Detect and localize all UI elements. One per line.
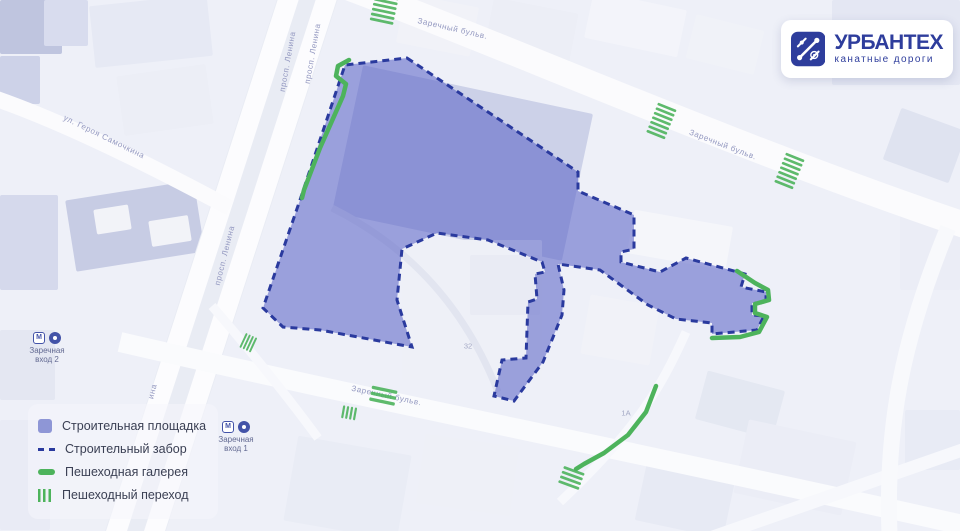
legend-item-site: Строительная площадка (38, 419, 206, 433)
gallery-swatch-icon (38, 469, 55, 475)
legend-item-fence: Строительный забор (38, 442, 206, 456)
legend-item-crosswalk: Пешеходный переход (38, 488, 206, 502)
brand-network-icon (791, 29, 825, 69)
brand-tagline: канатные дороги (834, 54, 943, 65)
construction-area-swatch-icon (38, 419, 52, 433)
legend-item-gallery: Пешеходная галерея (38, 465, 206, 479)
brand-name: УРБАНТЕХ (834, 33, 943, 53)
legend-label: Пешеходный переход (62, 488, 189, 502)
building-number-label: 32 (464, 342, 472, 351)
brand-text: УРБАНТЕХ канатные дороги (834, 33, 943, 65)
crosswalk-swatch-icon (38, 489, 52, 502)
dashed-fence-swatch-icon (38, 448, 55, 451)
legend-label: Строительная площадка (62, 419, 206, 433)
map-canvas: Заречный бульв.Заречный бульв.просп. Лен… (0, 0, 960, 531)
brand-logo-card: УРБАНТЕХ канатные дороги (781, 20, 953, 78)
legend-label: Строительный забор (65, 442, 187, 456)
building-number-label: 1А (621, 409, 630, 418)
legend: Строительная площадка Строительный забор… (28, 404, 218, 519)
legend-label: Пешеходная галерея (65, 465, 188, 479)
